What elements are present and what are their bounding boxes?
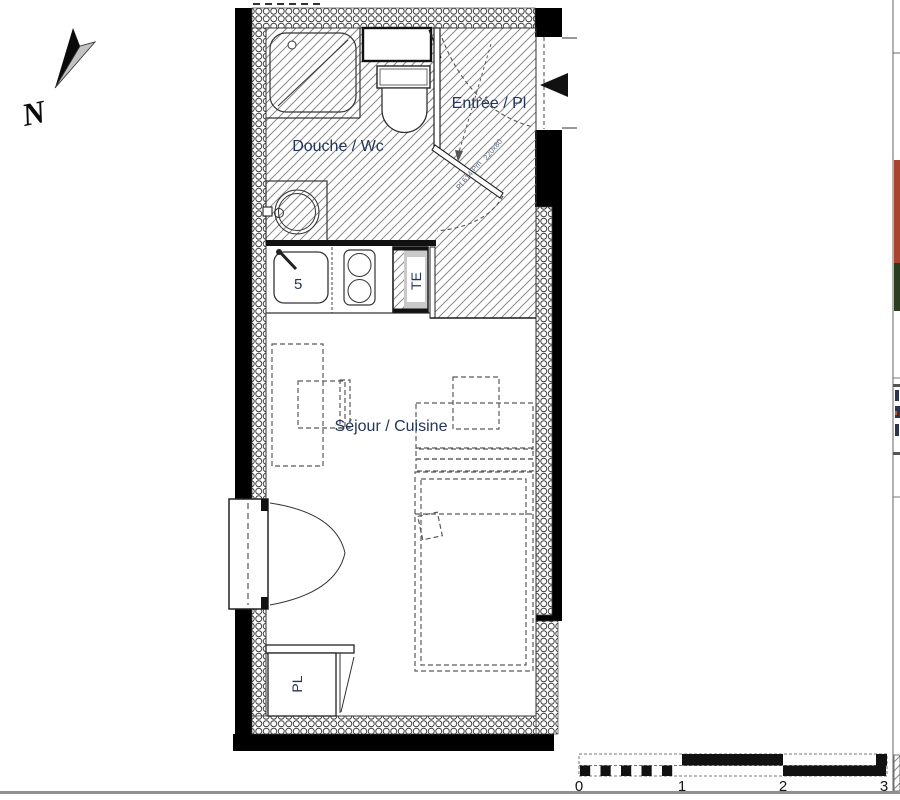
bed bbox=[415, 472, 533, 671]
sink-ref-label: 5 bbox=[294, 276, 302, 293]
north-label: N bbox=[18, 93, 51, 134]
shower-drain-icon bbox=[288, 41, 296, 49]
bath-hall-wall bbox=[434, 28, 440, 148]
living-label: Séjour / Cuisine bbox=[335, 418, 448, 435]
closet-label: PL bbox=[289, 675, 305, 692]
floorplan-canvas: N bbox=[0, 0, 900, 800]
shelf-bottom bbox=[416, 459, 533, 471]
entrance-closet bbox=[363, 28, 441, 61]
green-strip bbox=[894, 263, 900, 311]
basin-tap-icon bbox=[263, 207, 272, 216]
closet-pl bbox=[266, 645, 354, 716]
floorplan-drawing: N bbox=[0, 0, 900, 800]
window-swing bbox=[270, 503, 345, 605]
entrance-floor bbox=[430, 28, 536, 318]
shelf-top bbox=[416, 448, 533, 459]
north-arrow-icon: N bbox=[18, 28, 95, 133]
entrance-label: Entrée / Pl bbox=[452, 95, 527, 112]
electrical-panel-label: TE bbox=[408, 272, 424, 290]
cooktop bbox=[344, 250, 375, 305]
bath-kitchen-wall bbox=[266, 240, 436, 246]
scale-bar: 0 1 2 3 bbox=[575, 754, 888, 795]
cutoff-hatch-corner bbox=[894, 755, 900, 791]
bathroom-label: Douche / Wc bbox=[292, 138, 384, 155]
page-separator-line bbox=[0, 791, 900, 794]
hall-living-wall bbox=[430, 247, 435, 318]
red-strip bbox=[894, 160, 900, 263]
living-furniture bbox=[272, 344, 533, 671]
window bbox=[229, 499, 345, 609]
right-edge-cutoff bbox=[893, 0, 900, 791]
